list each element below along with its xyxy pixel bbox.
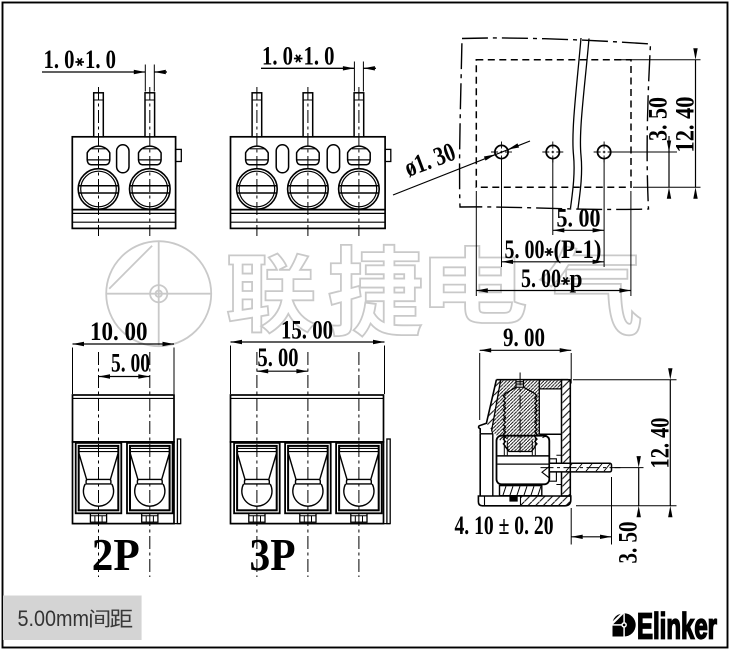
svg-text:ø1. 30: ø1. 30: [400, 136, 459, 182]
svg-text:5. 00: 5. 00: [505, 234, 545, 264]
svg-text:1. 0: 1. 0: [85, 44, 116, 74]
svg-text:10. 00: 10. 00: [90, 316, 148, 346]
svg-text:p: p: [570, 263, 583, 293]
svg-text:1. 0: 1. 0: [304, 41, 335, 71]
svg-text:4. 10 ± 0. 20: 4. 10 ± 0. 20: [455, 510, 554, 540]
svg-text:15. 00: 15. 00: [281, 314, 333, 344]
svg-text:12. 40: 12. 40: [644, 418, 674, 469]
svg-text:5. 00: 5. 00: [111, 348, 150, 378]
svg-text:5. 00: 5. 00: [521, 263, 561, 293]
svg-text:5. 00: 5. 00: [258, 342, 299, 372]
svg-text:(P-1): (P-1): [554, 234, 602, 264]
svg-text:3. 50: 3. 50: [613, 522, 643, 564]
svg-text:Elinker: Elinker: [637, 606, 717, 647]
svg-text:1. 0: 1. 0: [262, 41, 293, 71]
svg-text:3. 50: 3. 50: [643, 97, 673, 141]
svg-text:1. 0: 1. 0: [44, 44, 75, 74]
svg-text:3P: 3P: [250, 529, 296, 580]
svg-text:5.00mm: 5.00mm: [18, 606, 90, 631]
svg-text:5. 00: 5. 00: [557, 203, 601, 233]
svg-text:12. 40: 12. 40: [670, 97, 700, 153]
svg-text:2P: 2P: [92, 529, 140, 580]
svg-text:9. 00: 9. 00: [503, 322, 545, 352]
